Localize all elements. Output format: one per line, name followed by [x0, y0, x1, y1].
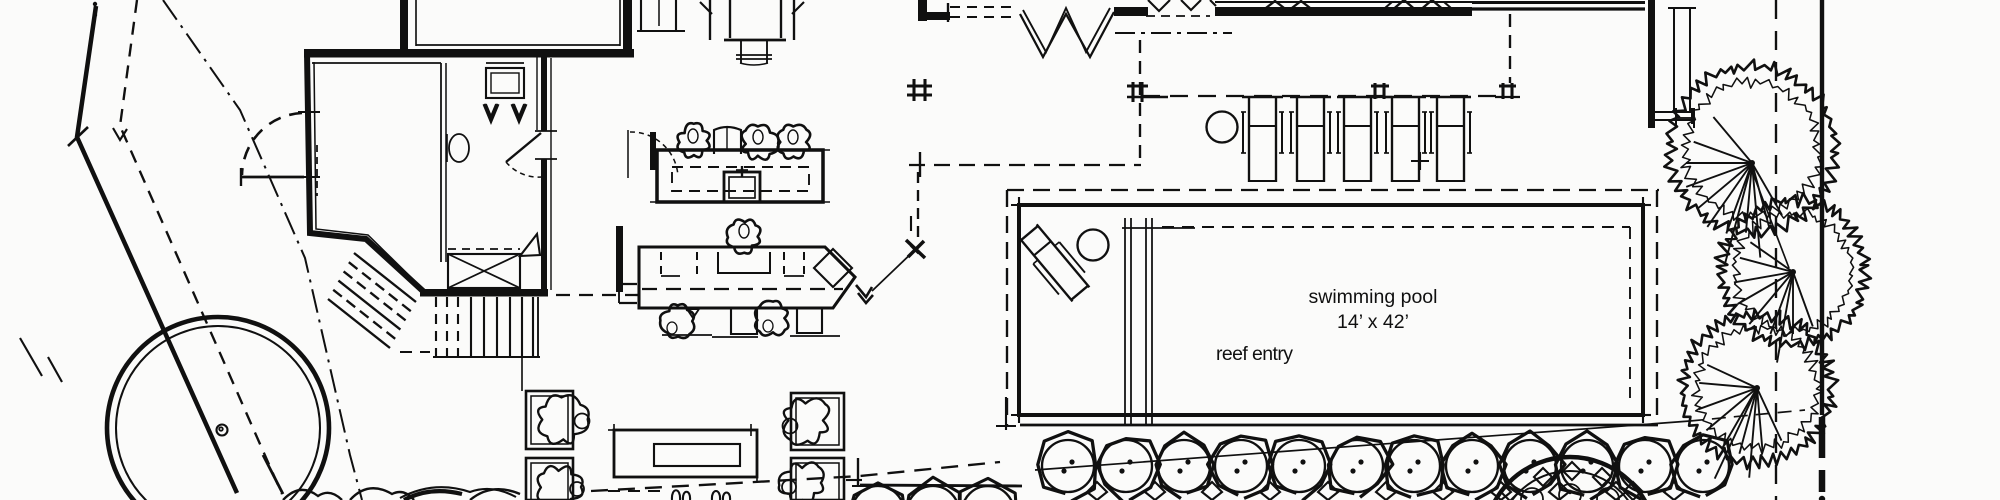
- svg-text:reef entry: reef entry: [1216, 343, 1293, 365]
- svg-text:swimming pool: swimming pool: [1309, 286, 1438, 308]
- svg-text:14’ x 42’: 14’ x 42’: [1337, 311, 1409, 333]
